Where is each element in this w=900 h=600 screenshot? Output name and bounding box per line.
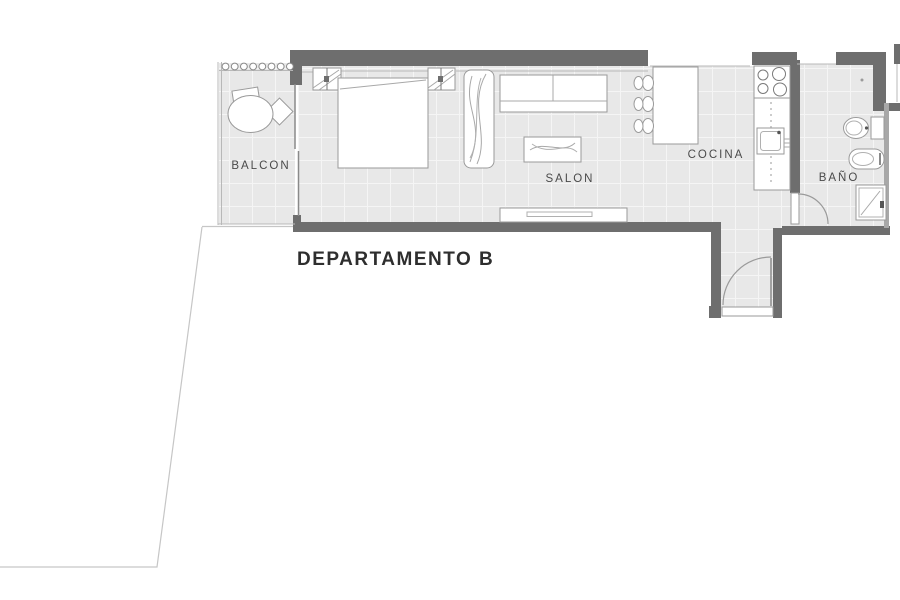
- wall-right-fragment: [894, 44, 900, 66]
- coffee-table: [524, 137, 581, 162]
- bidet: [849, 149, 884, 169]
- room-label-balcon: BALCON: [231, 160, 290, 172]
- room-label-bano: BAÑO: [819, 171, 860, 184]
- tv-bench: [500, 208, 627, 222]
- shower: [856, 185, 886, 220]
- room-label-salon: SALON: [546, 173, 595, 185]
- cooktop: [754, 66, 790, 98]
- window-jamb-left: [313, 68, 341, 90]
- floor-plan: BALCON SALON COCINA BAÑO DEPARTAMENTO B: [0, 0, 900, 600]
- ceiling-spot-dot: [861, 79, 864, 82]
- corridor-floor: [716, 222, 779, 310]
- wall-corridor-left-foot: [709, 306, 721, 318]
- page-title: DEPARTAMENTO B: [297, 249, 494, 270]
- property-boundary: [0, 227, 293, 568]
- wall-top-main: [290, 50, 648, 66]
- shower-valve: [880, 201, 884, 208]
- faucet-dot: [777, 131, 781, 135]
- entry-threshold: [722, 307, 773, 316]
- bathroom-door-leaf: [791, 193, 799, 224]
- wall-corridor-right: [773, 228, 782, 318]
- balcony-table: [228, 96, 273, 133]
- toilet: [844, 117, 885, 139]
- floor-plan-svg: BALCON SALON COCINA BAÑO DEPARTAMENTO B: [0, 0, 900, 600]
- wall-top-bathroom: [836, 52, 877, 65]
- wall-kitchen-right: [790, 60, 800, 193]
- bed: [338, 78, 428, 168]
- kitchen-island: [653, 67, 698, 144]
- room-label-cocina: COCINA: [688, 149, 745, 161]
- wall-bottom-salon: [293, 222, 718, 232]
- window-jamb-right: [428, 68, 455, 90]
- bar-stools: [634, 76, 654, 134]
- sofa: [500, 75, 607, 112]
- balcony-sliding-door: [295, 84, 299, 216]
- wardrobe: [464, 70, 494, 168]
- wall-right-upper: [873, 52, 886, 103]
- right-window-gap: [886, 64, 900, 102]
- wall-bottom-bathroom: [782, 226, 890, 235]
- wall-corridor-left: [711, 222, 721, 318]
